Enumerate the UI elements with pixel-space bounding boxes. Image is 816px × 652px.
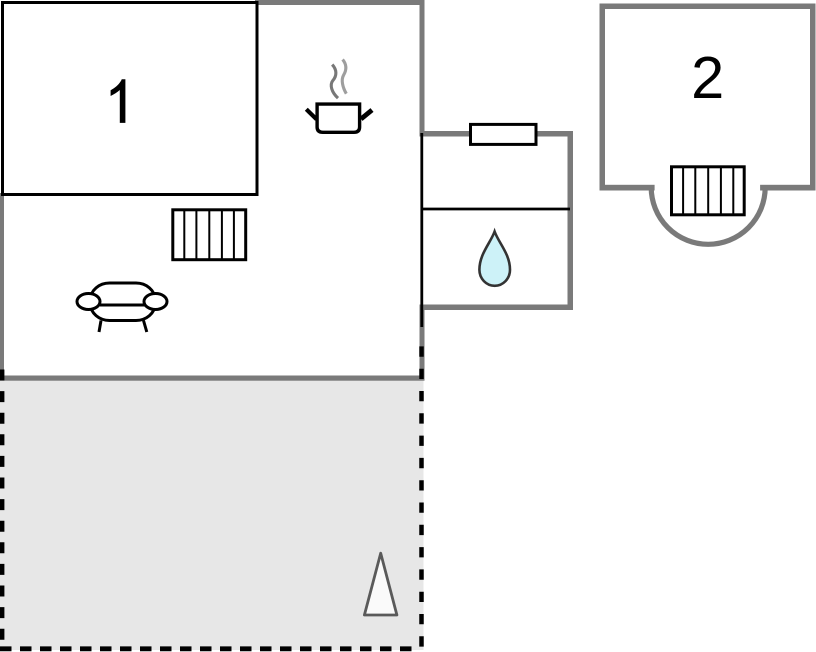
svg-text:2: 2 <box>691 44 724 111</box>
